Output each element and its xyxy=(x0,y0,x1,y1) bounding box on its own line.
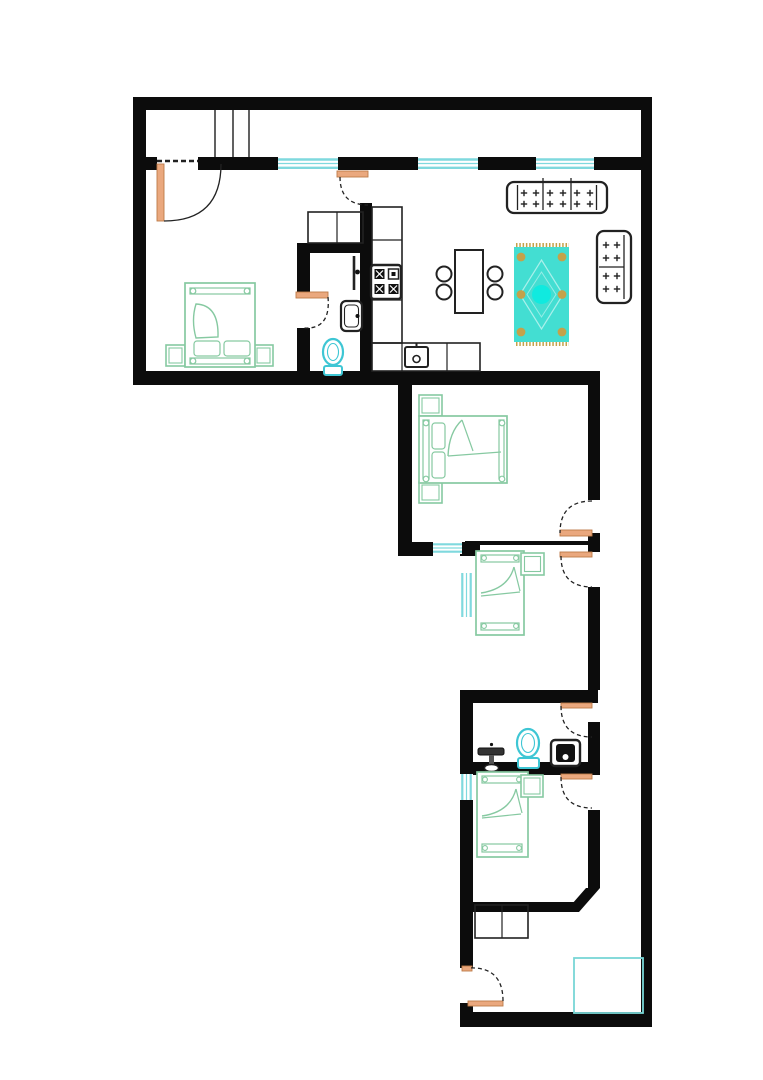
bedroom2-bottom-wall xyxy=(462,902,577,912)
balcony-dividers xyxy=(215,110,249,157)
bedroom-middle-right-wall xyxy=(588,385,600,500)
kitchen-sink-counter xyxy=(372,343,480,371)
wing-bottom-wall xyxy=(133,371,600,385)
master-bed xyxy=(166,283,273,367)
bedroom2-right-wall xyxy=(588,810,600,888)
window-bedroom1 xyxy=(460,573,473,617)
inner-wall-seg xyxy=(478,157,536,170)
window-bedroom2 xyxy=(460,774,473,800)
stove xyxy=(371,265,401,299)
door-bedroom-middle xyxy=(560,501,592,536)
floor-zone xyxy=(574,958,643,1013)
dining-table xyxy=(455,250,483,313)
towel-rail xyxy=(354,256,360,290)
rug xyxy=(514,245,569,344)
single-bed-1 xyxy=(476,551,544,635)
door-bathroom-lower xyxy=(561,703,592,737)
single-bed-2 xyxy=(477,772,543,857)
ensuite-bathroom-fixtures xyxy=(323,256,362,375)
door-bedroom2 xyxy=(561,774,592,808)
chamfer-wall xyxy=(565,888,600,912)
living-room-furniture xyxy=(437,178,632,344)
door-entry xyxy=(462,966,503,1006)
washing-machine xyxy=(551,740,580,766)
bedroom1-bathroom-wall xyxy=(460,690,598,703)
bedroom-middle-bottom-wall-a xyxy=(398,542,433,556)
door-ensuite-bathroom xyxy=(296,292,328,328)
washbasin xyxy=(341,301,362,331)
outer-wall-left xyxy=(133,110,146,385)
door-bedroom1 xyxy=(560,552,592,587)
kitchen-closets xyxy=(308,212,363,243)
window-top-1 xyxy=(278,157,338,170)
structural-walls xyxy=(133,97,652,1027)
bathroom-left-wall-upper xyxy=(297,243,310,293)
bedroom1-top-partition xyxy=(465,541,598,545)
toilet xyxy=(323,339,343,375)
floor-plan-canvas xyxy=(0,0,763,1080)
outer-wall-top xyxy=(133,97,652,110)
bedroom2-left-wall xyxy=(460,800,473,968)
entry-bottom-wall xyxy=(460,1012,651,1027)
middle-bedroom-bed xyxy=(419,395,507,503)
window-top-2 xyxy=(418,157,478,170)
bedroom1-right-wall xyxy=(588,587,600,690)
outer-wall-right xyxy=(641,110,652,1027)
floor-plan-page xyxy=(0,0,763,1080)
window-bedroom-middle xyxy=(433,542,462,554)
door-living-room xyxy=(337,171,368,205)
sofa-two-seat xyxy=(597,231,631,303)
lower-bathroom-fixtures xyxy=(478,729,580,772)
inner-wall-stub xyxy=(146,157,157,170)
window-top-3 xyxy=(536,157,594,170)
inner-wall-seg xyxy=(594,157,641,170)
inner-wall-seg xyxy=(198,157,278,170)
sofa-three-seat xyxy=(507,178,607,213)
bathroom-left-wall-lower xyxy=(297,328,310,371)
bedroom-middle-left-wall xyxy=(398,385,412,556)
toilet xyxy=(517,729,539,768)
entry-hall-fittings xyxy=(475,905,643,1013)
inner-wall-seg xyxy=(338,157,418,170)
